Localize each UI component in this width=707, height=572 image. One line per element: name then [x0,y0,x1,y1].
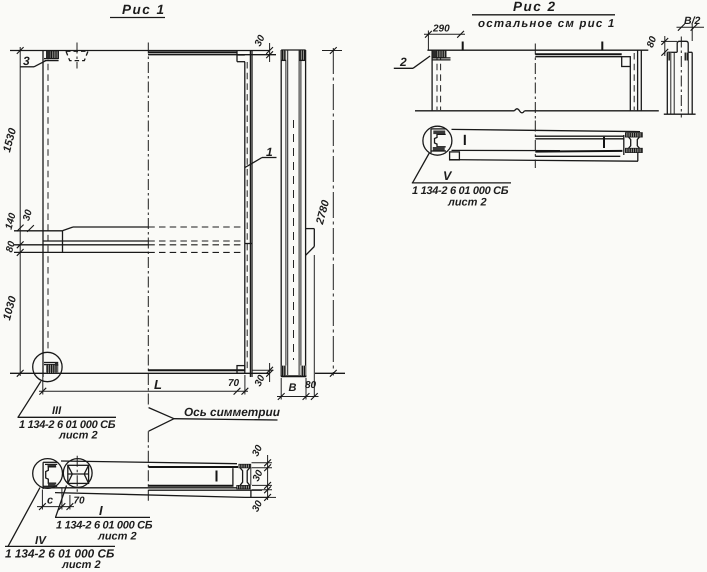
svg-text:III: III [52,405,62,417]
svg-text:290: 290 [432,24,450,35]
svg-text:В/2: В/2 [684,15,701,27]
svg-text:Рис 2: Рис 2 [513,0,557,14]
svg-text:лист 2: лист 2 [58,430,98,442]
svg-text:3: 3 [23,54,30,68]
svg-text:70: 70 [228,378,240,389]
svg-text:остальное см рис 1: остальное см рис 1 [478,18,615,30]
svg-text:лист 2: лист 2 [61,559,101,571]
svg-text:70: 70 [74,496,86,507]
svg-text:с: с [47,495,53,507]
svg-text:L: L [154,377,162,392]
svg-text:В: В [289,382,297,394]
svg-text:лист 2: лист 2 [447,197,487,209]
svg-text:2: 2 [399,55,407,69]
svg-text:IV: IV [35,535,47,547]
svg-text:1 134-2 6 01 000 СБ: 1 134-2 6 01 000 СБ [412,185,509,197]
svg-text:Ось симметрии: Ось симметрии [184,405,280,419]
svg-text:Рис 1: Рис 1 [122,2,166,17]
svg-text:лист 2: лист 2 [97,531,137,543]
svg-text:80: 80 [305,380,317,391]
svg-text:I: I [99,503,103,518]
